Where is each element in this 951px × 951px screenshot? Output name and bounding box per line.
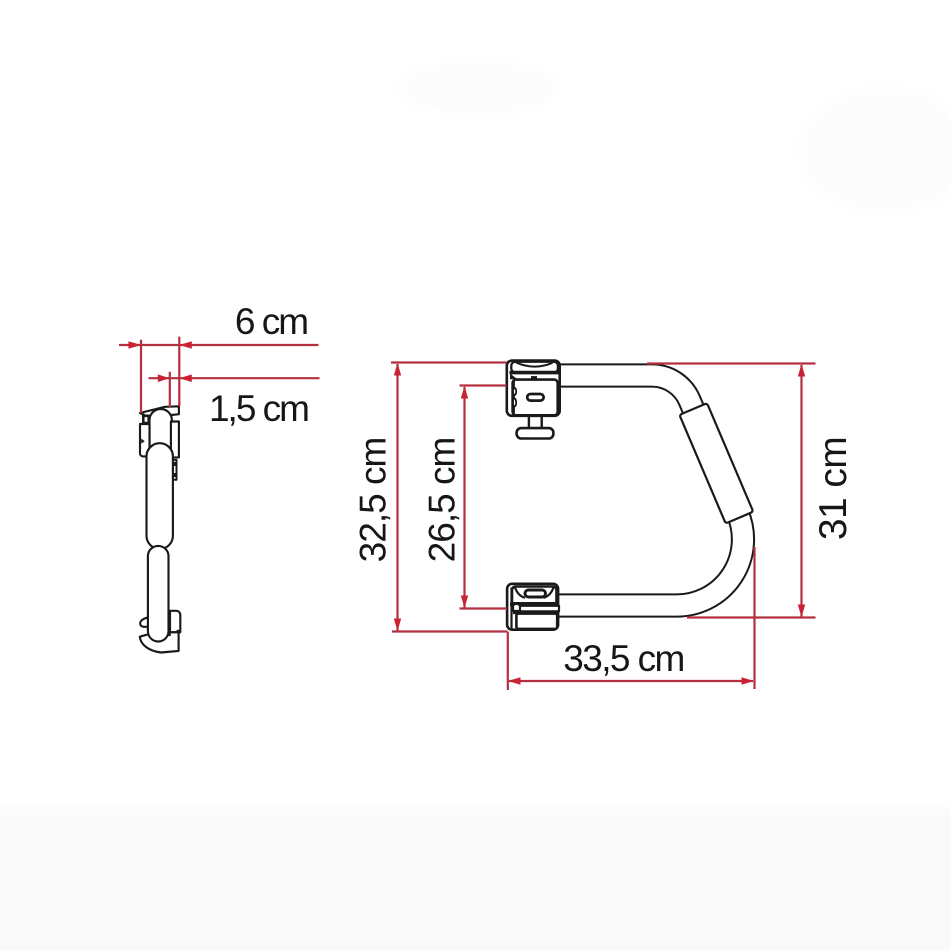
svg-text:33,5 cm: 33,5 cm (563, 638, 683, 679)
svg-text:6 cm: 6 cm (235, 301, 307, 342)
svg-text:1,5 cm: 1,5 cm (209, 388, 308, 429)
svg-text:32,5 cm: 32,5 cm (353, 438, 394, 563)
svg-text:26,5 cm: 26,5 cm (422, 438, 463, 563)
svg-text:31 cm: 31 cm (812, 437, 855, 540)
